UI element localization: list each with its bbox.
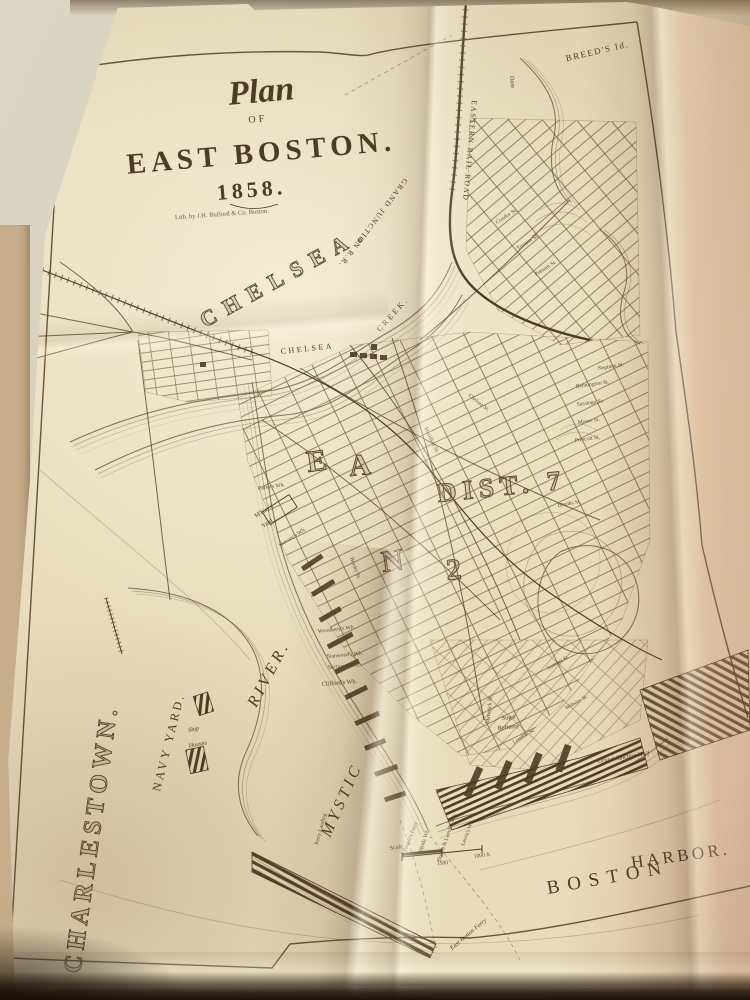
map-imprint: Lith. by J.H. Bufford & Co. Boston.: [175, 208, 270, 222]
map-label-grand-junction-rr: GRAND JUNCTION R.R.: [337, 177, 410, 270]
map-label-district-2: 2: [445, 553, 463, 587]
map-label-chelsea-creek-1: CHELSEA: [280, 341, 334, 356]
map-label-peoples-ferry: People's Ferry: [402, 821, 420, 853]
map-label-river: RIVER.: [244, 638, 293, 711]
map-sheet: Plan OF EAST BOSTON. 1858. Lith. by J.H.…: [0, 0, 750, 1000]
map-label-ship: Ship: [188, 725, 200, 734]
map-label-scale-1500: 1500: [437, 860, 449, 867]
map-label-scale-1000ft: 1000 ft.: [473, 851, 492, 860]
map-label-charlestown: CHARLESTOWN.: [59, 702, 124, 975]
map-label-east-boston-ferry: East Boston Ferry: [448, 917, 488, 952]
map-title-year: 1858.: [216, 174, 287, 205]
map-label-district-a: A: [347, 448, 372, 483]
map-label-navy-yard: NAVY YARD.: [149, 691, 187, 792]
map-label-cliffords-wharf: Clifford's Wh.: [322, 678, 358, 688]
map-label-mystic: MYSTIC: [318, 760, 366, 840]
title-block: Plan OF EAST BOSTON. 1858. Lith. by J.H.…: [125, 70, 397, 221]
map-title-plan: Plan: [226, 70, 296, 113]
map-label-breeds-island: BREED'S Id.: [565, 39, 630, 63]
map-title-of: OF: [248, 113, 268, 126]
map-label-chelsea: CHELSEA.: [195, 218, 374, 332]
map-title-main: EAST BOSTON.: [125, 125, 397, 180]
photo-of-folded-map: Plan OF EAST BOSTON. 1858. Lith. by J.H.…: [0, 0, 750, 1000]
map-artwork: Plan OF EAST BOSTON. 1858. Lith. by J.H.…: [0, 0, 750, 1000]
map-label-brown-lovells-wharf: Brown & Lovell's Wh.: [436, 812, 458, 863]
map-label-harbor: HARBOR.: [630, 839, 731, 872]
map-label-dam: Dam: [508, 75, 516, 89]
